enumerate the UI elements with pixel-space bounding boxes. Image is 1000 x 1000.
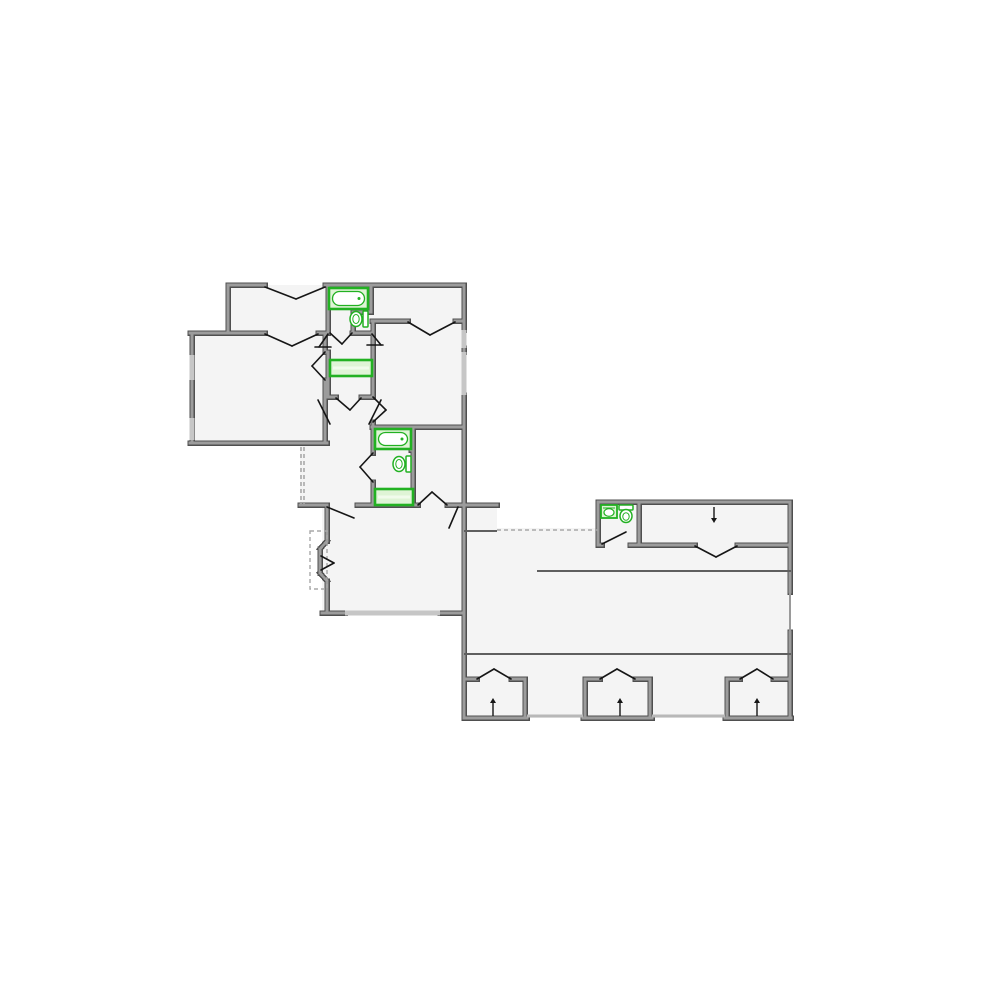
vanity-icon bbox=[330, 360, 372, 376]
vanity-icon bbox=[375, 489, 413, 505]
toilet-tank bbox=[406, 456, 411, 472]
floor-plan-svg bbox=[0, 0, 1000, 1000]
bathtub-icon bbox=[329, 288, 368, 309]
toilet-icon bbox=[350, 311, 368, 327]
toilet-icon bbox=[619, 505, 633, 523]
bathtub-icon bbox=[375, 429, 411, 449]
floor-plan-canvas bbox=[0, 0, 1000, 1000]
sink-basin bbox=[604, 509, 614, 517]
toilet-bowl bbox=[393, 457, 405, 472]
sink-icon bbox=[601, 505, 617, 518]
bathtub-drain bbox=[358, 297, 361, 300]
toilet-tank bbox=[363, 311, 368, 327]
bathtub-drain bbox=[401, 438, 404, 441]
toilet-icon bbox=[393, 456, 411, 472]
toilet-bowl bbox=[350, 312, 362, 327]
